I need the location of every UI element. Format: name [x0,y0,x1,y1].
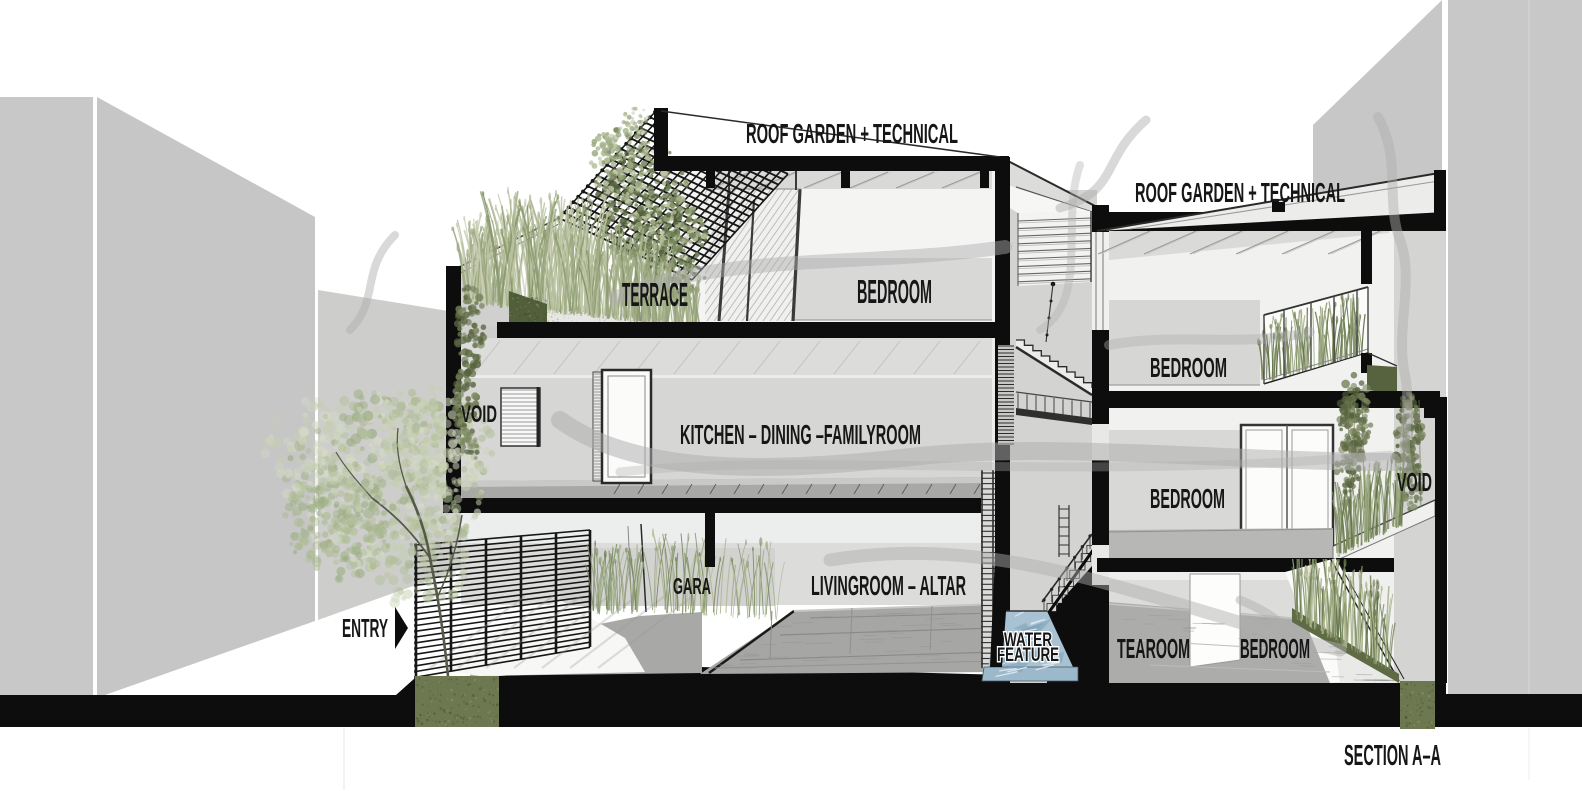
svg-text:ROOF GARDEN + TECHNICAL: ROOF GARDEN + TECHNICAL [746,118,958,149]
svg-text:ENTRY: ENTRY [342,613,388,643]
svg-text:BEDROOM: BEDROOM [1150,352,1227,383]
svg-text:TERRACE: TERRACE [622,276,688,313]
svg-text:TEAROOM: TEAROOM [1117,633,1190,664]
svg-text:VOID: VOID [461,401,497,428]
svg-text:BEDROOM: BEDROOM [1240,633,1310,664]
svg-text:SECTION A–A: SECTION A–A [1344,740,1441,772]
svg-text:ROOF GARDEN + TECHNICAL: ROOF GARDEN + TECHNICAL [1135,177,1345,208]
svg-text:FEATURE: FEATURE [997,644,1059,666]
svg-text:KITCHEN – DINING –FAMILYROOM: KITCHEN – DINING –FAMILYROOM [680,419,921,450]
svg-text:LIVINGROOM – ALTAR: LIVINGROOM – ALTAR [811,570,966,601]
svg-text:BEDROOM: BEDROOM [1150,483,1225,514]
svg-text:GARA: GARA [673,573,711,599]
svg-text:BEDROOM: BEDROOM [857,273,932,310]
svg-text:VOID: VOID [1397,467,1432,497]
